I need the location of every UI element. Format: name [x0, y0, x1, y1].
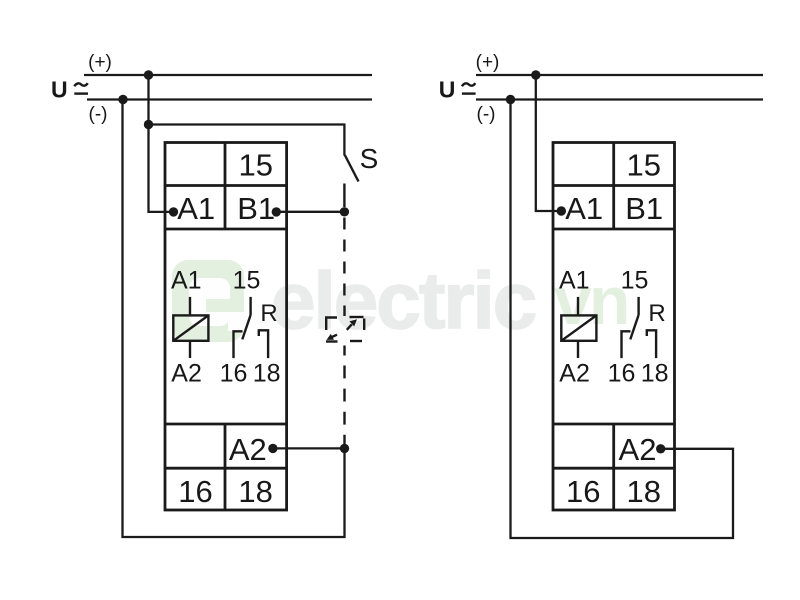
svg-text:(+): (+): [476, 52, 500, 73]
svg-text:R: R: [648, 300, 665, 327]
svg-text:A2: A2: [619, 432, 657, 467]
svg-text:16: 16: [608, 360, 636, 388]
svg-text:18: 18: [641, 360, 669, 388]
svg-text:16: 16: [566, 474, 600, 509]
svg-text:18: 18: [238, 474, 272, 509]
svg-text:15: 15: [621, 267, 649, 295]
svg-text:16: 16: [220, 360, 248, 388]
svg-text:U: U: [51, 77, 68, 103]
svg-text:B1: B1: [237, 191, 275, 226]
svg-text:15: 15: [239, 148, 273, 183]
svg-text:18: 18: [253, 360, 281, 388]
svg-text:A1: A1: [565, 191, 603, 226]
svg-text:(-): (-): [89, 104, 108, 125]
svg-text:A2: A2: [171, 360, 202, 388]
svg-text:A1: A1: [559, 267, 590, 295]
svg-text:A2: A2: [559, 360, 590, 388]
svg-text:15: 15: [627, 148, 661, 183]
svg-text:electric: electric: [271, 256, 536, 345]
svg-text:(-): (-): [477, 104, 496, 125]
svg-text:(+): (+): [88, 52, 112, 73]
svg-text:A1: A1: [177, 191, 215, 226]
svg-text:16: 16: [178, 474, 212, 509]
svg-text:B1: B1: [625, 191, 663, 226]
svg-text:18: 18: [627, 474, 661, 509]
svg-text:R: R: [260, 300, 277, 327]
svg-text:S: S: [360, 143, 379, 174]
svg-text:15: 15: [233, 267, 261, 295]
svg-text:A2: A2: [229, 432, 267, 467]
svg-text:U: U: [439, 77, 456, 103]
svg-text:A1: A1: [171, 267, 202, 295]
